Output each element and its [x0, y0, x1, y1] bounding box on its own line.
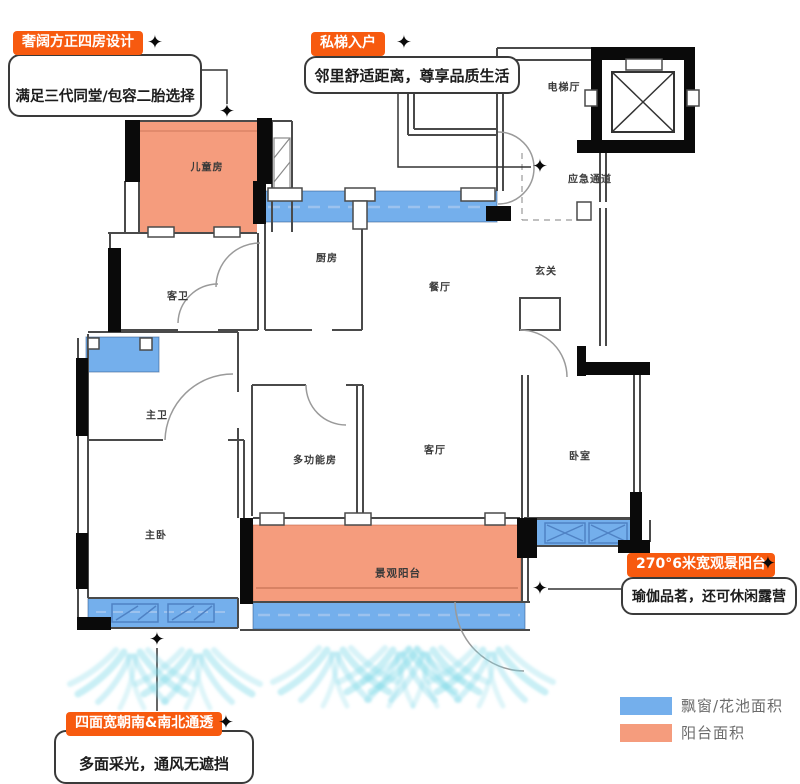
legend-item-window: 飘窗/花池面积 [620, 695, 783, 716]
legend: 飘窗/花池面积 阳台面积 [620, 695, 783, 749]
diamond-marker: ✦ [149, 631, 165, 650]
room-label-kitchen: 厨房 [316, 250, 338, 265]
diamond-marker: ✦ [532, 158, 548, 177]
wardrobe-detail [274, 138, 290, 190]
callout-text-four-rooms: 满足三代同堂/包容二胎选择 [15, 85, 194, 106]
room-label-master-bathroom: 主卫 [146, 407, 168, 422]
floor-plan-drawing [0, 0, 800, 783]
diamond-marker: ✦ [760, 555, 776, 574]
room-label-emergency-passage: 应急通道 [568, 171, 612, 186]
legend-label-window: 飘窗/花池面积 [681, 695, 783, 716]
callout-badge-view-balcony: 270°6米宽观景阳台 [627, 553, 775, 577]
room-label-elevator-hall: 电梯厅 [548, 79, 581, 94]
elevator-symbol [612, 72, 674, 132]
callout-badge-private-lift: 私梯入户 [311, 32, 385, 56]
room-label-living-room: 客厅 [424, 442, 446, 457]
callout-text-view-balcony: 瑜伽品茗，还可休闲露营 [632, 586, 786, 606]
room-label-entryway: 玄关 [535, 263, 557, 278]
legend-swatch-window [620, 697, 672, 715]
callout-south-facing: 多面采光，通风无遮挡 [54, 730, 254, 784]
diamond-marker: ✦ [219, 103, 235, 122]
callout-text-private-lift: 邻里舒适距离，尊享品质生活 [314, 65, 509, 86]
legend-swatch-balcony [620, 724, 672, 742]
room-label-multifunction-room: 多功能房 [293, 452, 337, 467]
room-label-bedroom: 卧室 [569, 448, 591, 463]
callout-four-rooms: 满足三代同堂/包容二胎选择 [8, 54, 202, 117]
callout-private-lift: 邻里舒适距离，尊享品质生活 [304, 56, 520, 94]
diamond-marker: ✦ [218, 714, 234, 733]
room-label-guest-bathroom: 客卫 [167, 288, 189, 303]
room-label-children-room: 儿童房 [191, 159, 224, 174]
diamond-marker: ✦ [147, 34, 163, 53]
callout-badge-four-rooms: 奢阔方正四房设计 [13, 31, 143, 55]
room-label-view-balcony: 景观阳台 [375, 566, 421, 581]
room-label-dining-room: 餐厅 [429, 279, 451, 294]
callout-view-balcony: 瑜伽品茗，还可休闲露营 [621, 577, 797, 615]
legend-item-balcony: 阳台面积 [620, 722, 783, 743]
floor-plan-stage: 儿童房 厨房 餐厅 电梯厅 应急通道 玄关 客卫 主卫 多功能房 客厅 卧室 主… [0, 0, 800, 783]
diamond-marker: ✦ [532, 580, 548, 599]
callout-text-south-facing: 多面采光，通风无遮挡 [79, 753, 229, 774]
callout-badge-south-facing: 四面宽朝南&南北通透 [66, 712, 222, 736]
airflow-waves [70, 648, 553, 708]
legend-label-balcony: 阳台面积 [681, 722, 745, 743]
room-label-master-bedroom: 主卧 [145, 527, 167, 542]
diamond-marker: ✦ [396, 34, 412, 53]
